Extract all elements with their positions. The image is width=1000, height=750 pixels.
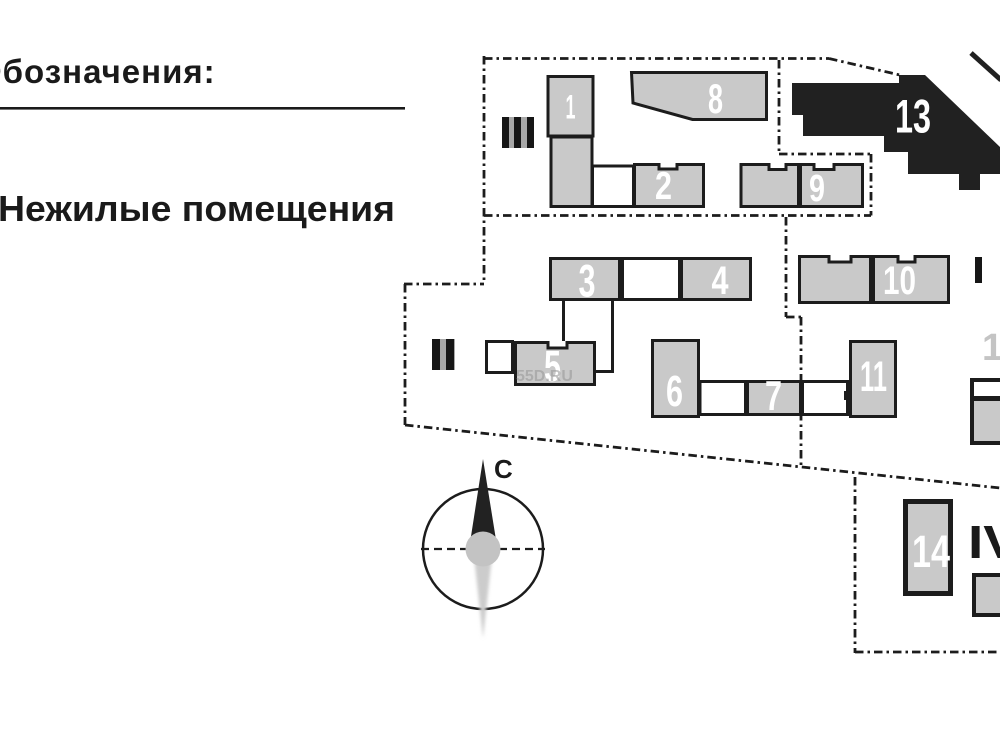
svg-text:1: 1 xyxy=(566,89,576,127)
svg-text:Нежилые помещения: Нежилые помещения xyxy=(0,188,395,229)
svg-text:6: 6 xyxy=(666,367,683,416)
svg-text:55D.RU: 55D.RU xyxy=(516,368,573,385)
svg-text:9: 9 xyxy=(809,168,825,210)
svg-text:10: 10 xyxy=(883,259,916,303)
svg-text:13: 13 xyxy=(895,90,931,143)
svg-text:Обозначения:: Обозначения: xyxy=(0,53,216,90)
svg-text:1: 1 xyxy=(982,327,1000,369)
svg-text:14: 14 xyxy=(912,526,950,577)
svg-text:4: 4 xyxy=(712,259,730,303)
svg-text:2: 2 xyxy=(655,165,672,208)
svg-text:С: С xyxy=(494,454,513,484)
svg-text:3: 3 xyxy=(579,256,596,307)
svg-text:11: 11 xyxy=(860,353,887,401)
svg-text:8: 8 xyxy=(708,75,723,122)
svg-text:IV: IV xyxy=(968,516,1000,568)
svg-text:7: 7 xyxy=(765,372,782,419)
